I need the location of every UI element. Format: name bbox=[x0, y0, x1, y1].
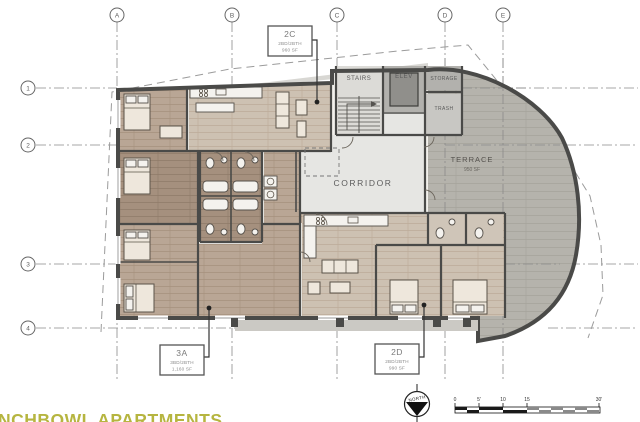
bathtub bbox=[203, 199, 228, 210]
svg-text:3: 3 bbox=[26, 261, 30, 268]
pilaster bbox=[231, 318, 238, 327]
terrace-label: TERRACE bbox=[451, 155, 494, 164]
corridor-label: CORRIDOR bbox=[333, 178, 392, 188]
project-title: NCHBOWL APARTMENTS bbox=[0, 410, 223, 422]
unit-2c-id: 2C bbox=[284, 29, 296, 39]
bathtub bbox=[233, 181, 258, 192]
window bbox=[116, 100, 121, 128]
scale-tick-5: 5' bbox=[477, 397, 481, 403]
pilaster bbox=[463, 318, 471, 327]
svg-text:4: 4 bbox=[26, 325, 30, 332]
grid-row-4: 4 bbox=[21, 321, 35, 335]
sink bbox=[252, 229, 258, 235]
scale-bar: 0 5' 10 15 30' bbox=[454, 397, 603, 413]
bed bbox=[453, 280, 487, 314]
svg-text:2: 2 bbox=[26, 142, 30, 149]
north-arrow: NORTH bbox=[405, 384, 430, 422]
window bbox=[398, 316, 422, 321]
svg-text:D: D bbox=[443, 12, 448, 19]
svg-text:B: B bbox=[230, 12, 234, 19]
bed bbox=[124, 158, 150, 194]
svg-text:A: A bbox=[115, 12, 120, 19]
scale-tick-10: 10 bbox=[500, 397, 506, 403]
grid-column-a: A bbox=[110, 8, 124, 22]
toilet bbox=[206, 158, 214, 168]
sink bbox=[252, 157, 258, 163]
scale-tick-0: 0 bbox=[454, 397, 457, 403]
pilaster bbox=[433, 318, 441, 327]
unit-2d-id: 2D bbox=[391, 347, 403, 357]
sofa bbox=[276, 92, 289, 128]
grid-row-2: 2 bbox=[21, 138, 35, 152]
sink bbox=[488, 219, 494, 225]
toilet bbox=[237, 224, 245, 234]
terrace-area-label: 950 SF bbox=[464, 167, 480, 173]
unit-2c-area: 960 SF bbox=[282, 48, 298, 53]
scale-tick-30: 30' bbox=[596, 397, 603, 403]
armchair bbox=[308, 282, 320, 294]
svg-text:C: C bbox=[335, 12, 340, 19]
bed bbox=[124, 284, 154, 312]
window bbox=[116, 236, 121, 264]
toilet bbox=[436, 228, 444, 238]
unit-2d-config: 2BD/2BTH bbox=[385, 359, 409, 364]
grid-row-1: 1 bbox=[21, 81, 35, 95]
unit-2c-config: 2BD/2BTH bbox=[278, 41, 302, 46]
unit-3a-config: 3BD/2BTH bbox=[170, 360, 194, 365]
grid-column-b: B bbox=[225, 8, 239, 22]
bed bbox=[124, 94, 150, 130]
coffee-table bbox=[297, 121, 306, 137]
stairs-label: STAIRS bbox=[347, 76, 372, 82]
pilaster bbox=[336, 318, 344, 327]
window bbox=[215, 316, 245, 321]
floor-plan-drawing: A B C D E 1 2 3 4 STAIRS ELEV STORAGE TR… bbox=[0, 0, 640, 422]
window bbox=[116, 278, 121, 304]
svg-text:1: 1 bbox=[26, 85, 30, 92]
scale-tick-15: 15 bbox=[524, 397, 530, 403]
floor-plan-sheet: A B C D E 1 2 3 4 STAIRS ELEV STORAGE TR… bbox=[0, 0, 640, 422]
armchair bbox=[296, 100, 307, 115]
bed bbox=[390, 280, 418, 314]
coffee-table bbox=[330, 282, 350, 293]
unit-2d-area: 990 SF bbox=[389, 366, 405, 371]
sink bbox=[449, 219, 455, 225]
window bbox=[116, 168, 121, 198]
sofa bbox=[322, 260, 358, 273]
trash-label: TRASH bbox=[435, 106, 454, 112]
unit-3a-id: 3A bbox=[176, 348, 187, 358]
toilet bbox=[237, 158, 245, 168]
bathtub bbox=[233, 199, 258, 210]
sink bbox=[221, 157, 227, 163]
unit-3a-area: 1,160 SF bbox=[172, 367, 192, 372]
bathtub bbox=[203, 181, 228, 192]
grid-row-3: 3 bbox=[21, 257, 35, 271]
storage-label: STORAGE bbox=[430, 76, 457, 82]
bed bbox=[124, 230, 150, 260]
toilet bbox=[206, 224, 214, 234]
sink bbox=[221, 229, 227, 235]
trash-room bbox=[426, 94, 462, 135]
dresser bbox=[160, 126, 182, 138]
elevator-label: ELEV bbox=[395, 74, 413, 80]
grid-column-d: D bbox=[438, 8, 452, 22]
window bbox=[138, 316, 168, 321]
grid-column-e: E bbox=[496, 8, 510, 22]
svg-text:E: E bbox=[501, 12, 506, 19]
toilet bbox=[475, 228, 483, 238]
grid-column-c: C bbox=[330, 8, 344, 22]
